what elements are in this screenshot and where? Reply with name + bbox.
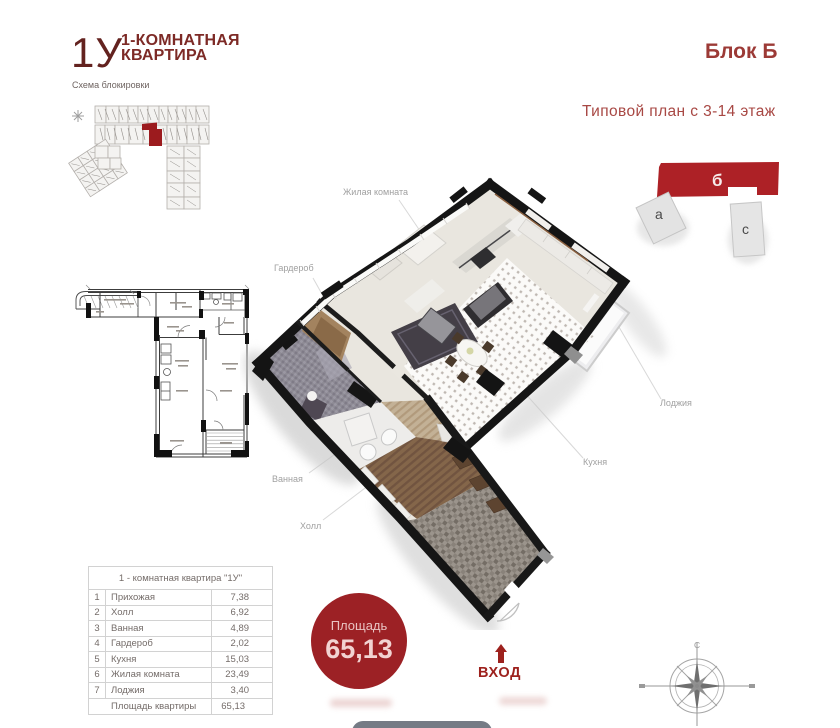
svg-text:б: б: [712, 171, 723, 190]
svg-text:С: С: [694, 640, 700, 650]
svg-text:с: с: [742, 221, 749, 237]
